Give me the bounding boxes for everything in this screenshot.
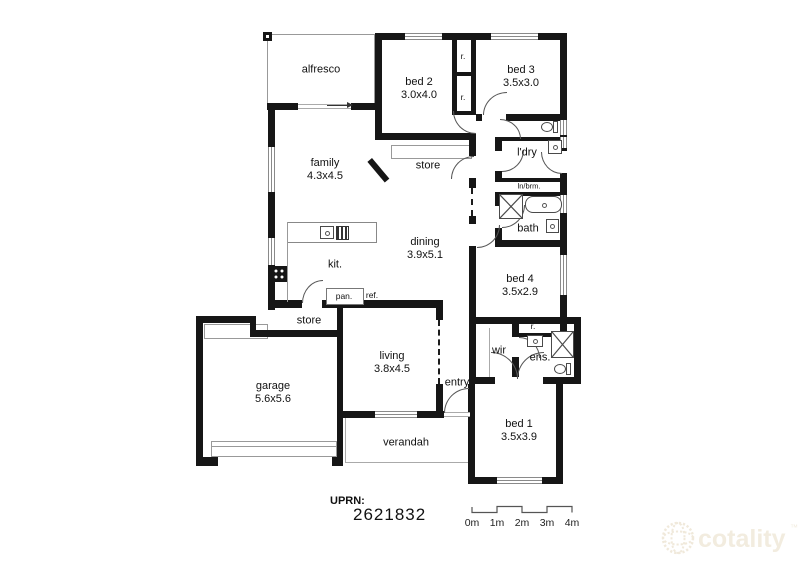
wall-ldry-left-a	[495, 141, 502, 151]
label-bed4: bed 43.5x2.9	[502, 273, 538, 299]
wall-robe-divider	[452, 72, 476, 76]
label-robe1: r.	[461, 51, 466, 61]
window-family-2	[268, 238, 275, 265]
door-arc-store	[451, 156, 474, 179]
store-shelf	[391, 145, 472, 159]
label-bath: bath	[517, 222, 538, 235]
wall-garage-right	[337, 300, 343, 465]
opening-living-entry	[438, 320, 440, 384]
label-bed2: bed 23.0x4.0	[401, 76, 437, 102]
label-entry: entry	[445, 376, 469, 389]
wall-bath-bottom	[495, 240, 567, 247]
door-arc-ldry-exterior	[541, 152, 562, 174]
wall-garage-bottom-right	[332, 457, 343, 466]
wall-bed1-left	[468, 384, 475, 484]
label-robe3: r.	[531, 321, 536, 331]
room-dims: 3.5x2.9	[502, 286, 538, 298]
window-living	[375, 411, 417, 418]
label-verandah: verandah	[383, 436, 429, 449]
room-name: ln/brm.	[518, 182, 541, 191]
room-name: r.	[461, 92, 466, 102]
room-name: l'dry	[517, 146, 537, 158]
room-dims: 3.9x5.1	[407, 249, 443, 261]
wall-family-bottom-left	[268, 300, 302, 308]
room-name: bed 2	[405, 76, 433, 88]
room-name: entry	[445, 376, 469, 388]
wall-store-chamfer	[367, 158, 389, 183]
scale-tick-3: 3m	[540, 517, 555, 529]
alfresco-post-dot	[266, 35, 269, 38]
room-name: living	[379, 350, 404, 362]
logo-text: cotality	[698, 525, 786, 553]
scale-tick-4: 4m	[565, 517, 580, 529]
window-bed4	[560, 255, 567, 295]
label-lnbrm: ln/brm.	[518, 182, 541, 191]
label-bed3: bed 33.5x3.0	[503, 64, 539, 90]
floor-plan: alfresco bed 23.0x4.0 bed 33.5x3.0 r. r.…	[0, 0, 800, 565]
wall-alfresco-divider	[375, 33, 382, 140]
wall-hall-b	[469, 178, 476, 188]
wall-garage-top	[196, 316, 256, 323]
kitchen-drainer	[336, 226, 349, 240]
wall-garage-left	[196, 316, 203, 465]
label-alfresco: alfresco	[302, 63, 341, 76]
wall-hall-d	[469, 246, 476, 383]
window-bed2	[405, 33, 442, 40]
door-arc-bed3	[483, 92, 507, 115]
label-store-bottom: store	[297, 314, 321, 327]
room-dims: 5.6x5.6	[255, 393, 291, 405]
room-name: ref.	[366, 290, 378, 300]
wall-wir-divider-a	[512, 317, 519, 337]
room-name: garage	[256, 380, 290, 392]
room-dims: 3.0x4.0	[401, 89, 437, 101]
wall-bed4-bottom	[469, 317, 581, 324]
kitchen-sink-tap	[325, 231, 330, 236]
label-store-top: store	[416, 159, 440, 172]
label-bed1: bed 13.5x3.9	[501, 418, 537, 444]
room-name: store	[416, 159, 440, 171]
sliding-door-arrowhead	[347, 102, 353, 108]
room-name: wir	[492, 344, 506, 356]
opening-dining-hall	[471, 188, 473, 216]
scale-tick-0: 0m	[465, 517, 480, 529]
label-ref: ref.	[366, 290, 378, 300]
room-name: store	[297, 314, 321, 326]
ens-vanity-basin	[533, 339, 538, 344]
wall-bed1-right	[556, 383, 563, 484]
room-name: kit.	[328, 258, 342, 270]
wall-bed3-bottom-a	[476, 114, 482, 121]
wc-toilet-bowl	[541, 122, 553, 132]
ldry-tub-drain	[553, 145, 558, 150]
window-bed1	[497, 477, 542, 484]
door-arc-bed2	[453, 111, 476, 134]
room-name: bed 1	[505, 418, 533, 430]
cotality-logo: cotality ™	[656, 514, 800, 560]
sliding-door-arrow	[327, 105, 347, 106]
kitchen-counter-line	[287, 222, 288, 302]
label-wir: wir	[492, 344, 506, 357]
door-arc-entry	[444, 388, 469, 413]
label-garage: garage5.6x5.6	[255, 380, 291, 406]
room-dims: 3.5x3.9	[501, 431, 537, 443]
room-name: bed 4	[506, 273, 534, 285]
wall-garage-bottom-left	[196, 457, 218, 466]
room-name: dining	[410, 236, 439, 248]
wall-alfresco-bottom-right	[351, 103, 376, 110]
bathtub-drain	[542, 203, 547, 208]
room-name: r.	[531, 321, 536, 331]
garage-door	[211, 441, 337, 457]
wall-bed2-bottom	[375, 133, 473, 140]
scale-tick-1: 1m	[490, 517, 505, 529]
label-ens: ens.	[530, 351, 551, 364]
label-ldry: l'dry	[517, 146, 537, 159]
window-wc	[560, 120, 567, 135]
room-name: pan.	[336, 291, 353, 301]
bath-vanity-basin	[550, 224, 555, 229]
wall-living-stub-top	[436, 300, 443, 320]
label-dining: dining3.9x5.1	[407, 236, 443, 262]
label-pan: pan.	[336, 291, 353, 301]
ens-shower	[551, 331, 574, 358]
ens-toilet-bowl	[554, 364, 566, 374]
scale-bar	[466, 503, 578, 516]
room-name: bath	[517, 222, 538, 234]
scale-tick-2: 2m	[515, 517, 530, 529]
wall-hall-c	[469, 216, 476, 224]
wir-shelf-line	[489, 328, 490, 378]
ens-toilet-tank	[566, 363, 571, 375]
window-family-1	[268, 147, 275, 192]
room-name: family	[311, 157, 340, 169]
room-dims: 4.3x4.5	[307, 170, 343, 182]
wall-store-bottom	[250, 330, 343, 337]
room-name: r.	[461, 51, 466, 61]
room-name: verandah	[383, 436, 429, 448]
wc-toilet-tank	[553, 121, 558, 133]
globe-icon	[663, 523, 693, 553]
cooktop-icon	[271, 266, 287, 282]
uprn-value: 2621832	[353, 505, 426, 525]
wall-bed3-bottom-b	[506, 114, 567, 121]
wall-ens-right	[574, 324, 581, 384]
door-arc-kitchen	[302, 280, 323, 303]
bath-shower	[499, 194, 523, 219]
label-robe2: r.	[461, 92, 466, 102]
wall-hall-a	[469, 133, 476, 156]
room-name: ens.	[530, 351, 551, 363]
label-family: family4.3x4.5	[307, 157, 343, 183]
room-dims: 3.5x3.0	[503, 77, 539, 89]
room-dims: 3.8x4.5	[374, 363, 410, 375]
logo-trademark: ™	[790, 523, 798, 532]
room-name: bed 3	[507, 64, 535, 76]
label-living: living3.8x4.5	[374, 350, 410, 376]
door-arc-wc	[500, 119, 521, 139]
room-name: alfresco	[302, 63, 341, 75]
label-kit: kit.	[328, 258, 342, 271]
window-bed3	[491, 33, 538, 40]
